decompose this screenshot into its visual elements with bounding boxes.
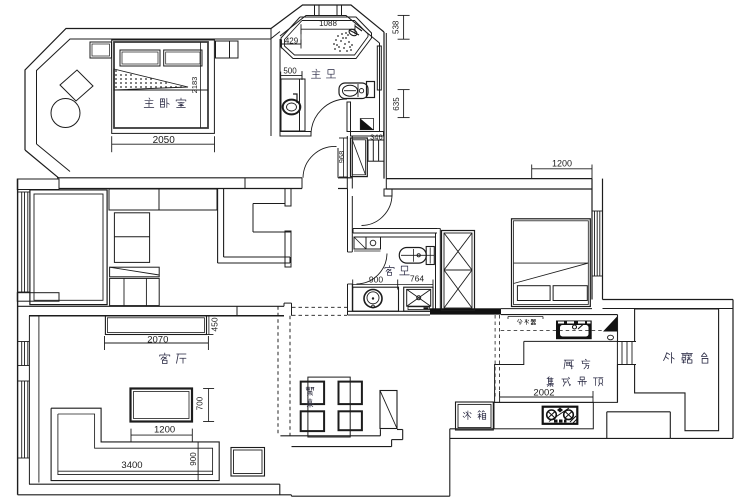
svg-text:429: 429	[285, 37, 299, 46]
svg-text:450: 450	[209, 317, 219, 331]
svg-text:2050: 2050	[153, 135, 176, 146]
svg-text:500: 500	[283, 66, 297, 75]
svg-text:2183: 2183	[190, 77, 199, 94]
svg-text:2070: 2070	[147, 335, 168, 346]
svg-text:2002: 2002	[533, 387, 554, 398]
svg-text:900: 900	[369, 274, 383, 284]
svg-text:346: 346	[370, 132, 383, 141]
svg-text:635: 635	[392, 97, 401, 111]
svg-text:900: 900	[189, 452, 198, 466]
svg-text:1200: 1200	[552, 159, 572, 169]
svg-text:1200: 1200	[154, 424, 175, 435]
svg-text:1088: 1088	[319, 19, 337, 28]
svg-text:764: 764	[410, 273, 424, 283]
svg-text:700: 700	[196, 396, 205, 410]
svg-text:538: 538	[391, 20, 400, 34]
svg-text:3400: 3400	[121, 460, 142, 471]
